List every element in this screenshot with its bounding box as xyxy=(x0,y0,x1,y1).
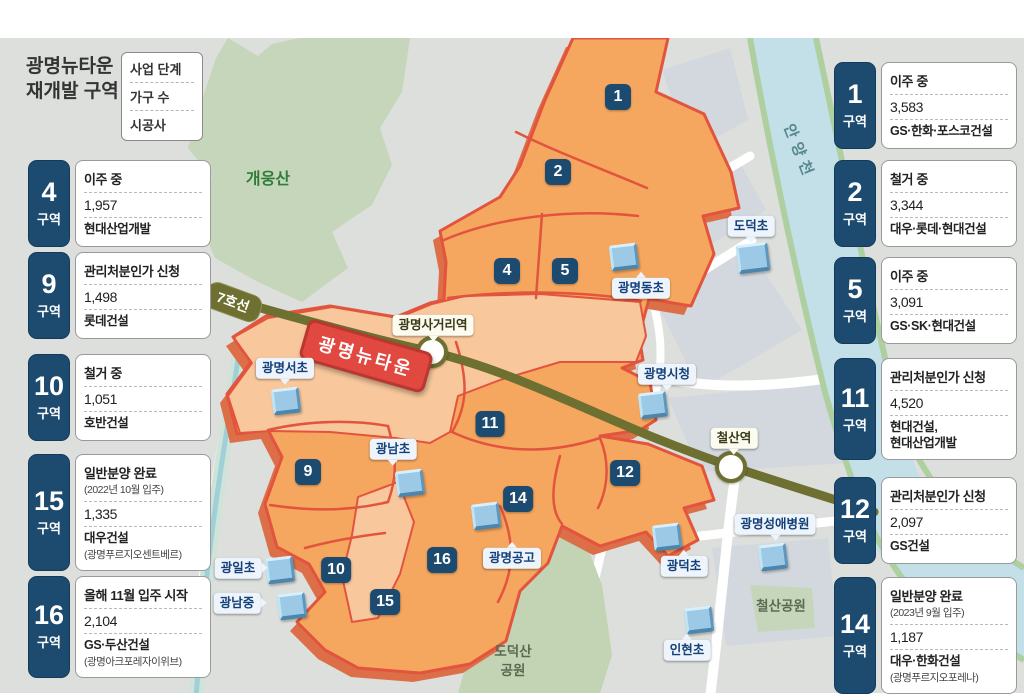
zone-builder: 대우·롯데·현대건설 xyxy=(890,217,1008,242)
zone-unit-label: 구역 xyxy=(843,641,867,660)
zone-status: 철거 중 xyxy=(84,359,202,386)
gonggo-label: 광명공고 xyxy=(483,548,541,569)
zone-unit-label: 구역 xyxy=(37,403,61,422)
cityhall-label: 광명시청 xyxy=(638,364,696,385)
cheolsan-station-icon xyxy=(715,451,747,483)
zone-number: 2 xyxy=(847,179,862,206)
zone-10-info-box: 10 구역 철거 중 1,051 호반건설 xyxy=(28,354,211,441)
zone-15-number-tile: 15 구역 xyxy=(28,454,70,571)
zone-status-note: (2023년 9월 입주) xyxy=(890,605,1008,620)
gwangnamcho-school-building xyxy=(395,468,426,497)
gwangmyeongseo-label: 광명서초 xyxy=(256,358,314,379)
bottom-margin xyxy=(0,693,1024,700)
map-zone-badge-10: 10 xyxy=(321,557,351,583)
zone-number: 11 xyxy=(841,385,870,412)
legend-stage: 사업 단계 xyxy=(130,55,194,82)
zone-4-detail-card: 이주 중 1,957 현대산업개발 xyxy=(75,160,211,247)
zone-1-info-box: 1 구역 이주 중 3,583 GS·한화·포스코건설 xyxy=(834,62,1017,149)
gwangdeokcho-label: 광덕초 xyxy=(661,556,708,577)
zone-builder: 현대건설, xyxy=(890,420,1008,436)
map-zone-badge-11: 11 xyxy=(476,411,505,437)
zone-households: 1,187 xyxy=(890,624,1008,649)
zone-5-number-tile: 5 구역 xyxy=(834,257,876,344)
hospital-label: 광명성애병원 xyxy=(734,514,815,535)
zone-status: 일반분양 완료 xyxy=(84,463,202,482)
hospital-building xyxy=(758,542,789,571)
zone-builder-row: 현대건설, 현대산업개발 xyxy=(890,415,1008,455)
zone-households: 4,520 xyxy=(890,390,1008,415)
map-zone-badge-16: 16 xyxy=(427,547,457,573)
dodeokcho-label: 도덕초 xyxy=(728,216,775,237)
gwangnamjung-school-building xyxy=(277,591,308,620)
zone-builder: GS건설 xyxy=(890,534,1008,559)
zone-builder-row: GS·두산건설 (광명아크포레자이위브) xyxy=(84,633,202,673)
zone-status: 관리처분인가 신청 xyxy=(890,363,1008,390)
mountain-label: 개웅산 xyxy=(246,165,290,189)
zone-number: 14 xyxy=(840,611,870,638)
zone-4-number-tile: 4 구역 xyxy=(28,160,70,247)
dodeoksan-line2: 공원 xyxy=(494,662,531,681)
page-title: 광명뉴타운 재개발 구역 xyxy=(26,55,119,104)
zone-households: 3,344 xyxy=(890,192,1008,217)
zone-status-row: 일반분양 완료 (2023년 9월 입주) xyxy=(890,582,1008,624)
zone-builder-2: 현대산업개발 xyxy=(890,436,1008,452)
gwangmyeongdong-school-building xyxy=(609,242,640,271)
zone-builder: GS·SK·현대건설 xyxy=(890,314,1008,339)
zone-14-number-tile: 14 구역 xyxy=(834,577,876,694)
zone-number: 5 xyxy=(847,276,862,303)
gwangdeokcho-school-building xyxy=(652,522,683,551)
zone-households: 3,091 xyxy=(890,289,1008,314)
zone-status: 관리처분인가 신청 xyxy=(84,257,202,284)
zone-number: 10 xyxy=(34,373,64,400)
zone-12-number-tile: 12 구역 xyxy=(834,477,876,564)
zone-builder-row: 대우·한화건설 (광명푸르지오포레나) xyxy=(890,649,1008,689)
zone-unit-label: 구역 xyxy=(843,306,867,325)
map-zone-badge-1: 1 xyxy=(605,84,631,110)
zone-5-detail-card: 이주 중 3,091 GS·SK·현대건설 xyxy=(881,257,1017,344)
zone-unit-label: 구역 xyxy=(843,526,867,545)
zone-number: 4 xyxy=(41,179,56,206)
page-title-line1: 광명뉴타운 xyxy=(26,55,119,80)
zone-households: 1,957 xyxy=(84,192,202,217)
zone-builder-note: (광명아크포레자이위브) xyxy=(84,654,202,669)
zone-status: 일반분양 완료 xyxy=(890,586,1008,605)
zone-unit-label: 구역 xyxy=(37,301,61,320)
legend-households: 가구 수 xyxy=(130,82,194,110)
zone-households: 2,097 xyxy=(890,509,1008,534)
map-zone-badge-9: 9 xyxy=(295,459,321,485)
cheolsan-park-label: 철산공원 xyxy=(756,598,806,617)
zone-status: 이주 중 xyxy=(890,67,1008,94)
zone-builder: GS·한화·포스코건설 xyxy=(890,119,1008,144)
map-zone-badge-12: 12 xyxy=(610,460,640,486)
zone-15-detail-card: 일반분양 완료 (2022년 10월 입주) 1,335 대우건설 (광명푸르지… xyxy=(75,454,211,571)
zone-5-info-box: 5 구역 이주 중 3,091 GS·SK·현대건설 xyxy=(834,257,1017,344)
zone-number: 12 xyxy=(840,496,870,523)
map-zone-badge-5: 5 xyxy=(552,258,578,284)
zone-builder: GS·두산건설 xyxy=(84,638,202,654)
zone-unit-label: 구역 xyxy=(843,209,867,228)
zone-builder: 호반건설 xyxy=(84,411,202,436)
zone-12-detail-card: 관리처분인가 신청 2,097 GS건설 xyxy=(881,477,1017,564)
zone-9-detail-card: 관리처분인가 신청 1,498 롯데건설 xyxy=(75,252,211,339)
zone-number: 15 xyxy=(34,488,64,515)
zone-unit-label: 구역 xyxy=(843,415,867,434)
zone-households: 2,104 xyxy=(84,608,202,633)
gwangnamjung-label: 광남중 xyxy=(214,593,261,614)
zone-number: 16 xyxy=(34,602,64,629)
zone-11-detail-card: 관리처분인가 신청 4,520 현대건설, 현대산업개발 xyxy=(881,358,1017,460)
zone-households: 1,498 xyxy=(84,284,202,309)
zone-households: 1,051 xyxy=(84,386,202,411)
zone-number: 1 xyxy=(847,81,862,108)
zone-unit-label: 구역 xyxy=(37,209,61,228)
zone-10-detail-card: 철거 중 1,051 호반건설 xyxy=(75,354,211,441)
dodeoksan-line1: 도덕산 xyxy=(494,643,531,662)
dodeoksan-park-label: 도덕산 공원 xyxy=(494,643,531,681)
legend-builder: 시공사 xyxy=(130,110,194,138)
zone-builder: 대우건설 xyxy=(84,531,202,547)
map-zone-badge-2: 2 xyxy=(545,159,571,185)
zone-unit-label: 구역 xyxy=(37,632,61,651)
zone-builder: 대우·한화건설 xyxy=(890,654,1008,670)
zone-households: 3,583 xyxy=(890,94,1008,119)
zone-14-info-box: 14 구역 일반분양 완료 (2023년 9월 입주) 1,187 대우·한화건… xyxy=(834,577,1017,694)
gonggo-school-building xyxy=(471,501,502,530)
zone-status-row: 일반분양 완료 (2022년 10월 입주) xyxy=(84,459,202,501)
gwangnamcho-label: 광남초 xyxy=(370,439,417,460)
zone-14-detail-card: 일반분양 완료 (2023년 9월 입주) 1,187 대우·한화건설 (광명푸… xyxy=(881,577,1017,694)
gwangilcho-label: 광일초 xyxy=(215,558,262,579)
gwangmyeong-sageori-station-label: 광명사거리역 xyxy=(392,315,473,336)
zone-15-info-box: 15 구역 일반분양 완료 (2022년 10월 입주) 1,335 대우건설 … xyxy=(28,454,211,571)
zone-builder-row: 대우건설 (광명푸르지오센트베르) xyxy=(84,526,202,566)
inhyeoncho-label: 인현초 xyxy=(664,640,711,661)
zone-12-info-box: 12 구역 관리처분인가 신청 2,097 GS건설 xyxy=(834,477,1017,564)
zone-status: 관리처분인가 신청 xyxy=(890,482,1008,509)
map-zone-badge-15: 15 xyxy=(370,589,400,615)
zone-2-number-tile: 2 구역 xyxy=(834,160,876,247)
zone-status: 올해 11월 입주 시작 xyxy=(84,581,202,608)
zone-households: 1,335 xyxy=(84,501,202,526)
zone-1-number-tile: 1 구역 xyxy=(834,62,876,149)
zone-builder-note: (광명푸르지오센트베르) xyxy=(84,547,202,562)
zone-1-detail-card: 이주 중 3,583 GS·한화·포스코건설 xyxy=(881,62,1017,149)
page-title-line2: 재개발 구역 xyxy=(26,80,119,105)
zone-4-info-box: 4 구역 이주 중 1,957 현대산업개발 xyxy=(28,160,211,247)
zone-2-detail-card: 철거 중 3,344 대우·롯데·현대건설 xyxy=(881,160,1017,247)
zone-status: 이주 중 xyxy=(84,165,202,192)
zone-16-detail-card: 올해 11월 입주 시작 2,104 GS·두산건설 (광명아크포레자이위브) xyxy=(75,576,211,678)
zone-unit-label: 구역 xyxy=(37,518,61,537)
zone-unit-label: 구역 xyxy=(843,111,867,130)
cheolsan-station-label: 철산역 xyxy=(711,428,758,449)
top-margin xyxy=(0,0,1024,38)
zone-builder: 현대산업개발 xyxy=(84,217,202,242)
zone-9-number-tile: 9 구역 xyxy=(28,252,70,339)
gwangmyeongseo-school-building xyxy=(271,386,302,415)
map-zone-badge-14: 14 xyxy=(503,486,533,512)
dodeokcho-school-building xyxy=(735,242,770,275)
zone-status: 이주 중 xyxy=(890,262,1008,289)
zone-builder-note: (광명푸르지오포레나) xyxy=(890,670,1008,685)
legend-box: 사업 단계 가구 수 시공사 xyxy=(121,52,203,141)
zone-10-number-tile: 10 구역 xyxy=(28,354,70,441)
zone-9-info-box: 9 구역 관리처분인가 신청 1,498 롯데건설 xyxy=(28,252,211,339)
gwangmyeongdong-label: 광명동초 xyxy=(612,278,670,299)
zone-number: 9 xyxy=(41,271,56,298)
zone-16-number-tile: 16 구역 xyxy=(28,576,70,678)
map-zone-badge-4: 4 xyxy=(494,258,520,284)
zone-11-info-box: 11 구역 관리처분인가 신청 4,520 현대건설, 현대산업개발 xyxy=(834,358,1017,460)
zone-status: 철거 중 xyxy=(890,165,1008,192)
zone-11-number-tile: 11 구역 xyxy=(834,358,876,460)
zone-builder: 롯데건설 xyxy=(84,309,202,334)
inhyeoncho-school-building xyxy=(684,605,715,634)
zone-16-info-box: 16 구역 올해 11월 입주 시작 2,104 GS·두산건설 (광명아크포레… xyxy=(28,576,211,678)
gwangmyeong-newtown-map: 개웅산 도덕산 공원 철산공원 안양천 7호선 광명뉴타운 광명사거리역 철산역… xyxy=(0,0,1024,700)
zone-status-note: (2022년 10월 입주) xyxy=(84,482,202,497)
gwangilcho-school-building xyxy=(265,555,296,584)
cityhall-building xyxy=(638,390,669,419)
zone-2-info-box: 2 구역 철거 중 3,344 대우·롯데·현대건설 xyxy=(834,160,1017,247)
